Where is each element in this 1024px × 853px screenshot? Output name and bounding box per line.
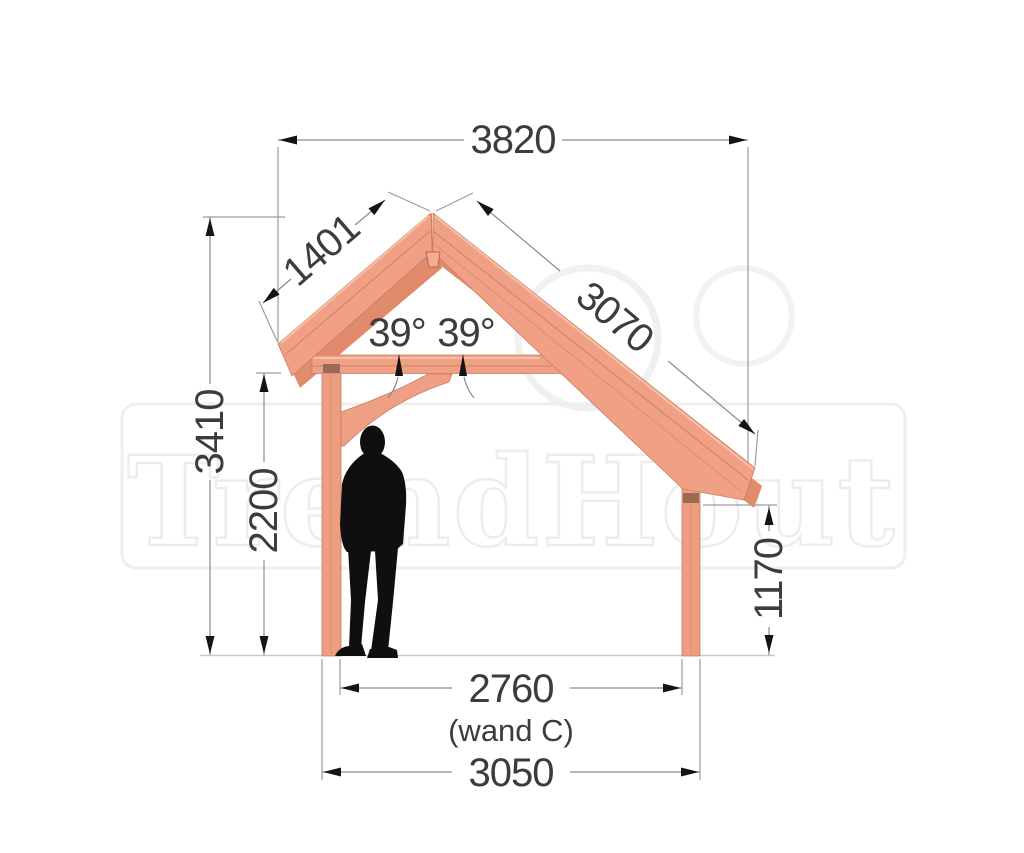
dim-label-clearance-height: 2200	[242, 469, 286, 554]
dim-label-top-width: 3820	[471, 118, 556, 162]
dimension-top-width: 3820	[278, 118, 748, 162]
dimension-inner-width: 2760 (wand C)	[340, 667, 682, 748]
silhouette-body	[340, 454, 406, 552]
silhouette-head	[360, 426, 385, 459]
dim-label-right-roof-angle: 39°	[437, 311, 495, 355]
dim-label-base-width: 3050	[469, 751, 554, 795]
ridge-joint	[426, 252, 440, 267]
dimension-clearance-height: 2200	[242, 373, 286, 655]
watermark-logo-circle-small	[696, 268, 792, 364]
left-post-connector-band	[323, 364, 340, 373]
dim-label-left-roof-angle: 39°	[368, 311, 426, 355]
dimension-base-width: 3050	[322, 751, 700, 795]
dim-label-inner-width-note: (wand C)	[448, 713, 574, 748]
right-post-connector-band	[683, 493, 699, 503]
dim-label-inner-width: 2760	[469, 667, 554, 711]
technical-drawing-page: TrendHout	[0, 0, 1024, 853]
dim-label-right-post-height: 1170	[747, 538, 791, 620]
dimension-total-height: 3410	[188, 217, 232, 655]
dim-label-total-height: 3410	[188, 390, 232, 475]
timber-frame-elevation-drawing: TrendHout	[0, 0, 1024, 853]
